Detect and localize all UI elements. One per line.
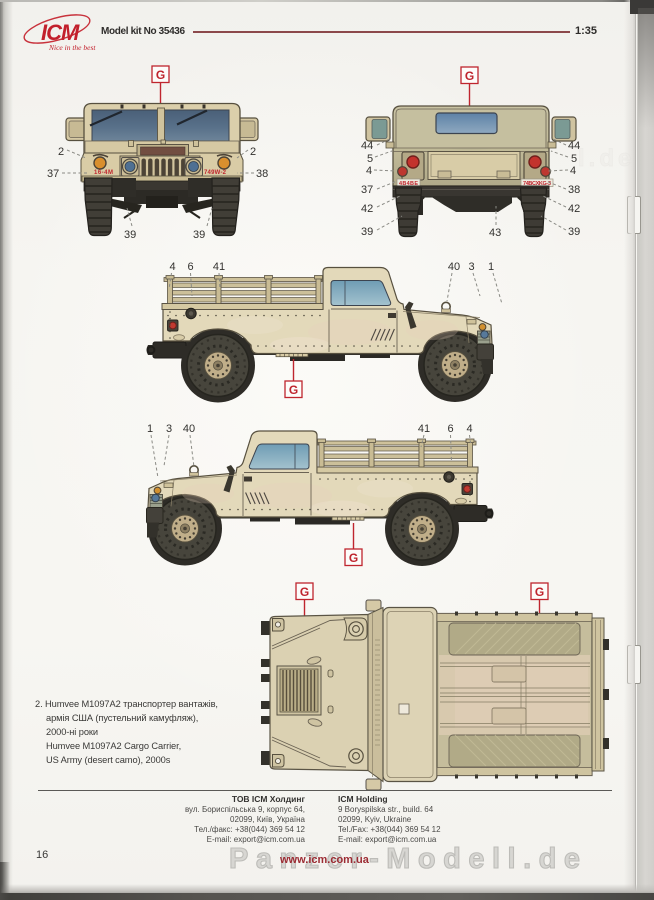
svg-text:749W-2: 749W-2 [204,170,227,176]
svg-text:39: 39 [361,226,373,238]
svg-text:39: 39 [124,229,136,241]
svg-text:4: 4 [466,423,472,435]
svg-text:38: 38 [568,184,580,196]
svg-text:37: 37 [47,168,59,180]
svg-text:G: G [349,551,358,565]
svg-text:2: 2 [250,146,256,158]
svg-text:43: 43 [489,227,501,239]
svg-text:G: G [300,585,309,599]
svg-text:42: 42 [361,203,373,215]
svg-text:1: 1 [488,261,494,273]
svg-text:40: 40 [183,423,195,435]
svg-text:39: 39 [568,226,580,238]
svg-text:4: 4 [366,165,372,177]
svg-text:44: 44 [361,140,373,152]
svg-text:1: 1 [147,423,153,435]
svg-text:2: 2 [58,146,64,158]
svg-text:40: 40 [448,261,460,273]
svg-text:l.de: l.de [578,145,635,172]
svg-text:3: 3 [166,423,172,435]
svg-text:41: 41 [418,423,430,435]
svg-text:G: G [465,69,474,83]
svg-text:16-4M: 16-4M [94,170,113,176]
svg-text:G: G [535,585,544,599]
svg-text:42: 42 [568,203,580,215]
svg-text:6: 6 [187,261,193,273]
svg-text:3: 3 [468,261,474,273]
svg-text:G: G [156,68,165,82]
svg-text:38: 38 [256,168,268,180]
svg-text:6: 6 [447,423,453,435]
svg-text:G: G [289,383,298,397]
svg-text:39: 39 [193,229,205,241]
svg-text:37: 37 [361,184,373,196]
svg-text:5: 5 [367,153,373,165]
svg-text:41: 41 [213,261,225,273]
svg-text:4: 4 [169,261,175,273]
